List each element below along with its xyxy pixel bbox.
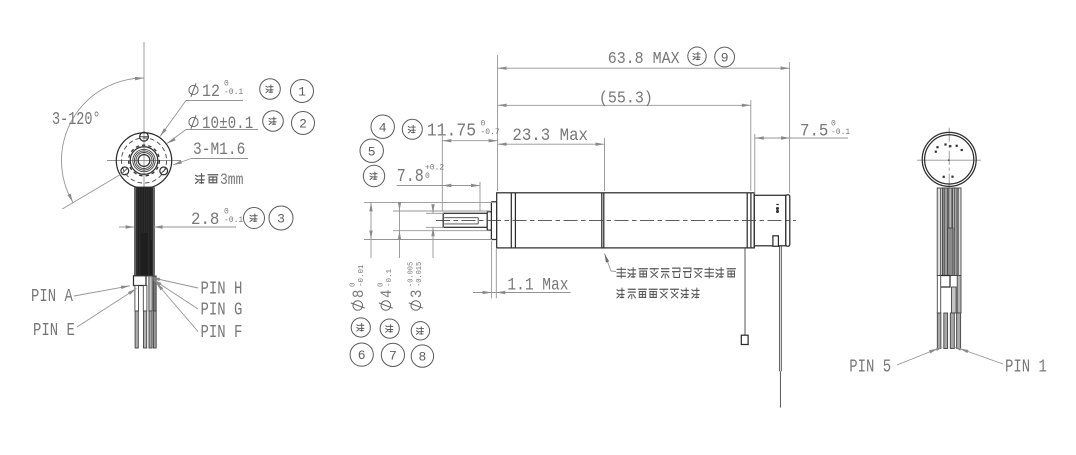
svg-text:7.5: 7.5 (800, 122, 828, 142)
svg-text:PIN E: PIN E (33, 319, 75, 341)
svg-text:-0.1: -0.1 (831, 128, 850, 137)
svg-text:9: 9 (721, 51, 729, 66)
svg-text:(55.3): (55.3) (599, 89, 653, 108)
svg-text:PIN 5: PIN 5 (849, 356, 891, 378)
svg-text:0: 0 (425, 172, 430, 181)
svg-text:3mm: 3mm (220, 172, 243, 189)
svg-text:23.3 Max: 23.3 Max (512, 126, 588, 146)
svg-text:-0.1: -0.1 (224, 88, 243, 97)
svg-text:-0.7: -0.7 (481, 128, 500, 137)
svg-text:PIN A: PIN A (31, 285, 73, 307)
svg-text:2: 2 (299, 117, 307, 132)
svg-text:-0.1: -0.1 (386, 268, 394, 287)
svg-text:12: 12 (202, 82, 220, 101)
svg-text:3: 3 (409, 290, 426, 298)
svg-text:0: 0 (350, 282, 358, 287)
svg-text:3: 3 (277, 212, 285, 227)
svg-text:8: 8 (418, 350, 426, 365)
svg-text:6: 6 (358, 348, 366, 363)
svg-text:63.8 MAX: 63.8 MAX (608, 49, 680, 68)
svg-text:11.75: 11.75 (427, 121, 477, 142)
svg-text:-0.1: -0.1 (224, 216, 243, 225)
svg-text:PIN 1: PIN 1 (1005, 356, 1047, 378)
svg-text:-0.015: -0.015 (416, 262, 424, 287)
svg-text:PIN F: PIN F (201, 321, 243, 343)
svg-text:7: 7 (389, 349, 397, 364)
svg-text:PIN G: PIN G (201, 299, 243, 321)
svg-text:3-120°: 3-120° (52, 108, 101, 130)
svg-text:4: 4 (379, 289, 396, 298)
svg-text:4: 4 (379, 120, 387, 135)
svg-text:1: 1 (298, 85, 306, 100)
svg-text:0: 0 (378, 282, 386, 287)
svg-text:-0.005: -0.005 (408, 262, 416, 287)
svg-text:1.1 Max: 1.1 Max (507, 274, 568, 295)
svg-text:10±0.1: 10±0.1 (202, 114, 253, 134)
svg-text:2.8: 2.8 (191, 210, 219, 230)
svg-text:PIN H: PIN H (201, 278, 243, 300)
svg-text:7.8: 7.8 (397, 167, 424, 188)
svg-text:3-M1.6: 3-M1.6 (193, 140, 245, 159)
svg-text:8: 8 (351, 290, 368, 298)
svg-text:-0.01: -0.01 (358, 264, 366, 287)
svg-text:5: 5 (368, 144, 376, 159)
